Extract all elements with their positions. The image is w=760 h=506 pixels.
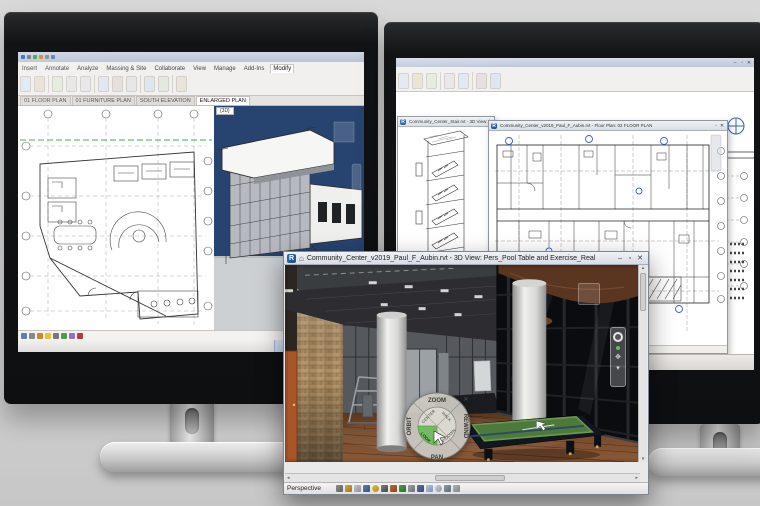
undo-icon[interactable] xyxy=(33,55,37,59)
front-window-titlebar[interactable]: R ⌂ Community_Center_v2019_Paul_F_Aubin.… xyxy=(284,252,648,265)
measure-tool-icon[interactable] xyxy=(158,76,169,92)
view-tab-furniture-plan[interactable]: 01 FURNITURE PLAN xyxy=(72,96,135,105)
worksharing-display-icon[interactable] xyxy=(444,485,451,492)
scroll-right-icon[interactable]: ▸ xyxy=(635,475,638,481)
ribbon-tab-analyze[interactable]: Analyze xyxy=(75,65,100,73)
temporary-hide-icon[interactable] xyxy=(426,485,433,492)
sun-path-icon[interactable] xyxy=(372,485,379,492)
front-maximize-icon[interactable]: ▫ xyxy=(625,255,635,262)
create-tool-icon[interactable] xyxy=(176,76,187,92)
pan-icon[interactable]: ✥ xyxy=(615,354,621,361)
reveal-hidden-icon[interactable] xyxy=(435,485,442,492)
ribbon-tab-view[interactable]: View xyxy=(191,65,208,73)
revit-app-icon: R xyxy=(287,254,296,263)
move-tool-icon[interactable] xyxy=(80,76,91,92)
plan-win-close-icon[interactable]: ✕ xyxy=(719,123,725,129)
left-3d-view-tab[interactable]: {3D} xyxy=(216,107,234,115)
steering-wheel[interactable]: ZOOM PAN ORBIT REWIND CENTER WALK UP/DOW… xyxy=(397,389,477,462)
right-monitor-stand-base xyxy=(648,448,760,476)
stair-window-title: Community_Center_Stair.rvt - 3D View: {3… xyxy=(409,119,492,124)
scale-icon[interactable] xyxy=(345,485,352,492)
paste-tool-icon[interactable] xyxy=(34,76,45,92)
wall-tool-icon[interactable] xyxy=(398,73,409,89)
front-close-icon[interactable]: ✕ xyxy=(635,254,645,262)
ribbon-tab-annotate[interactable]: Annotate xyxy=(43,65,71,73)
view3d-label: {3D} xyxy=(220,108,230,114)
lock-3d-view-icon[interactable] xyxy=(417,485,424,492)
vertical-scrollbar[interactable]: ▴ ▾ xyxy=(638,265,647,462)
wheel-rewind-label: REWIND xyxy=(462,414,468,439)
redo-icon[interactable] xyxy=(39,55,43,59)
right-minimize-icon[interactable]: – xyxy=(732,60,738,66)
right-maximize-icon[interactable]: ▫ xyxy=(739,60,745,66)
hscroll-thumb[interactable] xyxy=(435,475,505,481)
left-ribbon-tab-row: Insert Annotate Analyze Massing & Site C… xyxy=(20,62,364,73)
ribbon-tab-modify[interactable]: Modify xyxy=(270,64,294,73)
wheel-close-icon[interactable]: ✕ xyxy=(463,397,468,403)
ribbon-tab-insert[interactable]: Insert xyxy=(20,65,39,73)
right-close-icon[interactable]: ✕ xyxy=(746,60,752,66)
horizontal-scrollbar[interactable]: ◂ ▸ xyxy=(285,473,640,482)
ribbon-tab-collaborate[interactable]: Collaborate xyxy=(152,65,187,73)
view-tab-floor-plan[interactable]: 01 FLOOR PLAN xyxy=(20,96,71,105)
view-tab-enlarged-plan[interactable]: ENLARGED PLAN xyxy=(196,96,250,105)
join-tool-icon[interactable] xyxy=(52,76,63,92)
wheel-pan-label: PAN xyxy=(431,455,443,461)
crop-view-icon[interactable] xyxy=(399,485,406,492)
shadows-icon[interactable] xyxy=(381,485,388,492)
front-window-title: Community_Center_v2019_Paul_F_Aubin.rvt … xyxy=(307,255,595,262)
status-dot-icon xyxy=(616,346,620,350)
detail-level-icon[interactable] xyxy=(354,485,361,492)
scroll-down-icon[interactable]: ▾ xyxy=(639,456,647,462)
visual-style-icon[interactable] xyxy=(37,333,43,339)
left-view-tab-row: 01 FLOOR PLAN 01 FURNITURE PLAN SOUTH EL… xyxy=(18,96,364,106)
temporary-hide-icon[interactable] xyxy=(77,333,83,339)
shadows-icon[interactable] xyxy=(53,333,59,339)
stair-tool-icon[interactable] xyxy=(490,73,501,89)
ribbon-tab-manage[interactable]: Manage xyxy=(212,65,238,73)
scroll-left-icon[interactable]: ◂ xyxy=(287,475,290,481)
pool-table-3d-window[interactable]: R ⌂ Community_Center_v2019_Paul_F_Aubin.… xyxy=(283,251,649,495)
right-revit-titlebar: – ▫ ✕ xyxy=(396,58,754,67)
front-minimize-icon[interactable]: – xyxy=(615,255,625,262)
left-revit-titlebar xyxy=(18,52,364,62)
left-monitor-stand-base xyxy=(100,442,300,472)
component-tool-icon[interactable] xyxy=(444,73,455,89)
view-type-label: Perspective xyxy=(287,485,321,492)
ribbon-tab-massing-site[interactable]: Massing & Site xyxy=(104,65,148,73)
print-icon[interactable] xyxy=(45,55,49,59)
vscroll-thumb[interactable] xyxy=(640,273,646,311)
plan-window-title: Community_Center_v2019_Paul_F_Aubin.rvt … xyxy=(500,123,652,128)
scene: Insert Annotate Analyze Massing & Site C… xyxy=(0,0,760,506)
display-mode-icon[interactable] xyxy=(327,485,334,492)
navigation-bar[interactable]: ✥ ▾ xyxy=(610,327,626,387)
enlarged-plan-drawing[interactable] xyxy=(18,106,214,331)
view-tab-south-elevation[interactable]: SOUTH ELEVATION xyxy=(136,96,195,105)
door-tool-icon[interactable] xyxy=(412,73,423,89)
reveal-hidden-icon[interactable] xyxy=(69,333,75,339)
front-view-control-bar: Perspective xyxy=(284,482,648,494)
scale-icon[interactable] xyxy=(21,333,27,339)
left-ribbon-panels xyxy=(20,74,362,94)
print-preview-icon[interactable] xyxy=(336,485,343,492)
view-tool-icon[interactable] xyxy=(144,76,155,92)
rendering-icon[interactable] xyxy=(390,485,397,492)
revit-doc-icon: R xyxy=(400,119,406,125)
show-crop-icon[interactable] xyxy=(408,485,415,492)
revit-doc-icon: R xyxy=(491,123,497,129)
3d-viewport[interactable]: ✥ ▾ ZOOM PAN ORBIT REWIND CENT xyxy=(285,265,640,462)
cut-tool-icon[interactable] xyxy=(66,76,77,92)
steering-wheel-icon[interactable] xyxy=(613,332,623,342)
wheel-orbit-label: ORBIT xyxy=(407,416,413,435)
roof-tool-icon[interactable] xyxy=(476,73,487,89)
home-icon[interactable]: ⌂ xyxy=(299,254,304,263)
right-ribbon xyxy=(396,67,754,92)
left-ribbon: Insert Annotate Analyze Massing & Site C… xyxy=(18,62,364,96)
measure-icon[interactable] xyxy=(51,55,55,59)
detail-level-icon[interactable] xyxy=(29,333,35,339)
window-tool-icon[interactable] xyxy=(426,73,437,89)
scroll-up-icon[interactable]: ▴ xyxy=(642,265,645,271)
viewcube[interactable] xyxy=(578,283,600,305)
ribbon-tab-addins[interactable]: Add-Ins xyxy=(242,65,267,73)
analysis-display-icon[interactable] xyxy=(453,485,460,492)
crop-view-icon[interactable] xyxy=(61,333,67,339)
revit-app-icon[interactable] xyxy=(21,55,25,59)
visual-style-icon[interactable] xyxy=(363,485,370,492)
wheel-zoom-label: ZOOM xyxy=(428,398,446,404)
mirror-tool-icon[interactable] xyxy=(126,76,137,92)
rotate-tool-icon[interactable] xyxy=(112,76,123,92)
sun-path-icon[interactable] xyxy=(45,333,51,339)
column-tool-icon[interactable] xyxy=(458,73,469,89)
navbar-chevron-icon[interactable]: ▾ xyxy=(616,365,620,372)
save-icon[interactable] xyxy=(27,55,31,59)
copy-tool-icon[interactable] xyxy=(98,76,109,92)
modify-tool-icon[interactable] xyxy=(20,76,31,92)
